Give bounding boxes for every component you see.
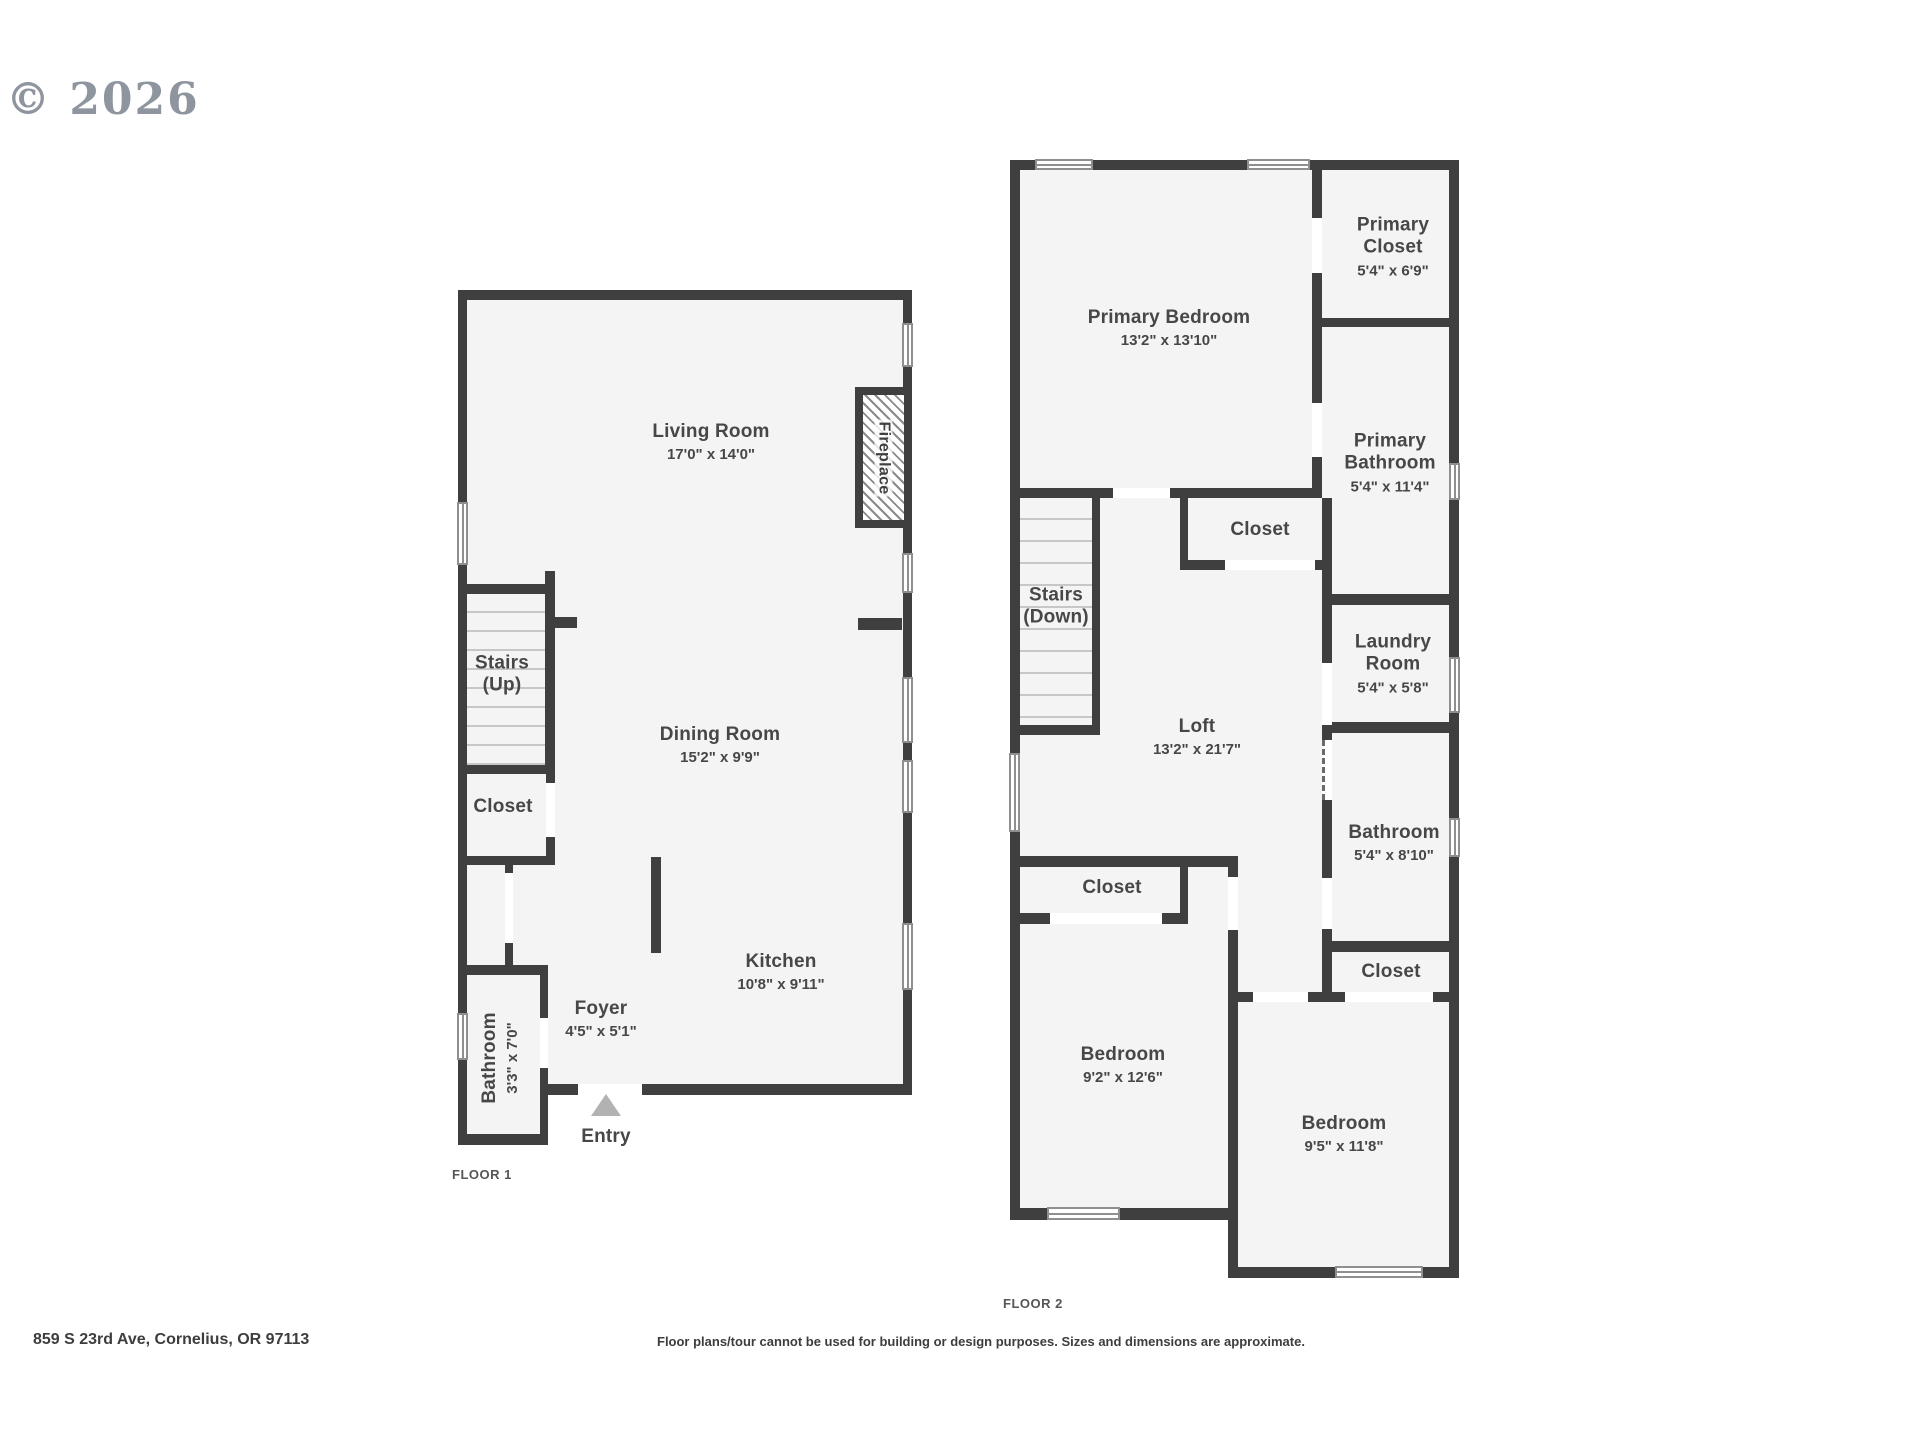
- room-name: Closet: [1082, 877, 1141, 899]
- window: [1335, 1266, 1423, 1278]
- wall: [458, 1134, 548, 1145]
- wall: [458, 765, 555, 774]
- room-name: Kitchen: [737, 951, 824, 973]
- window: [1449, 463, 1460, 500]
- wall: [1010, 856, 1238, 867]
- room-label: Closet: [473, 796, 532, 818]
- wall: [1010, 1208, 1238, 1220]
- room-name: Bathroom: [1348, 822, 1439, 844]
- door-opening: [1322, 663, 1332, 725]
- floor-2-label: FLOOR 2: [1003, 1296, 1063, 1311]
- room-label: Stairs (Down): [1023, 585, 1089, 630]
- room-name: Bedroom: [1302, 1113, 1387, 1135]
- window-pane: [907, 679, 909, 741]
- window-pane: [1454, 820, 1456, 855]
- fireplace: Fireplace: [855, 387, 912, 528]
- window: [902, 923, 913, 990]
- wall: [1010, 725, 1100, 735]
- window-pane: [907, 762, 909, 811]
- room-label: Dining Room15'2" x 9'9": [660, 724, 780, 766]
- floor-plan: © 2026 FireplaceLiving Room17'0" x 14'0"…: [0, 0, 1920, 1440]
- room-dims: 15'2" x 9'9": [660, 749, 780, 766]
- window-pane: [462, 504, 464, 563]
- room-dims: 9'2" x 12'6": [1081, 1069, 1166, 1086]
- room-dims: 3'3" x 7'0": [504, 1012, 521, 1103]
- room-dims: 10'8" x 9'11": [737, 976, 824, 993]
- room-name: Primary Bedroom: [1088, 307, 1250, 329]
- wall: [858, 618, 902, 630]
- room-label: Bedroom9'5" x 11'8": [1302, 1113, 1387, 1155]
- room-label: Primary Closet5'4" x 6'9": [1357, 215, 1429, 280]
- wall: [1010, 160, 1020, 1220]
- door-opening: [1225, 560, 1315, 570]
- wall: [458, 584, 547, 594]
- room-name: Living Room: [652, 421, 769, 443]
- room-label: Living Room17'0" x 14'0": [652, 421, 769, 463]
- window-pane: [907, 325, 909, 365]
- room-label: Foyer4'5" x 5'1": [565, 998, 636, 1040]
- door-opening: [1253, 992, 1308, 1002]
- window-pane: [1454, 465, 1456, 498]
- room-dims: 5'4" x 11'4": [1344, 478, 1435, 495]
- fireplace-label: Fireplace: [875, 419, 893, 496]
- room-label: Closet: [1082, 877, 1141, 899]
- window-pane: [1049, 1213, 1118, 1215]
- wall: [458, 965, 548, 975]
- room-dims: 13'2" x 21'7": [1153, 741, 1241, 758]
- window: [457, 502, 468, 565]
- door-opening: [1312, 403, 1322, 457]
- window: [1047, 1207, 1120, 1220]
- window-pane: [1037, 164, 1091, 166]
- floor-1-label: FLOOR 1: [452, 1167, 512, 1182]
- window-pane: [907, 925, 909, 988]
- room-dims: 5'4" x 8'10": [1348, 847, 1439, 864]
- wall: [1322, 722, 1458, 733]
- property-address: 859 S 23rd Ave, Cornelius, OR 97113: [33, 1331, 309, 1349]
- room-dims: 13'2" x 13'10": [1088, 332, 1250, 349]
- door-opening: [1050, 913, 1162, 924]
- wall: [651, 857, 661, 953]
- plan-layer: FireplaceLiving Room17'0" x 14'0"Dining …: [0, 0, 1920, 1440]
- room-label: Bathroom3'3" x 7'0": [479, 1012, 521, 1103]
- door-opening: [546, 783, 555, 837]
- room-dims: 17'0" x 14'0": [652, 446, 769, 463]
- room-label: Entry: [581, 1126, 631, 1148]
- wall: [1449, 160, 1459, 1278]
- wall: [1322, 318, 1458, 327]
- window: [1247, 159, 1310, 170]
- window-pane: [462, 1015, 464, 1058]
- door-opening: [1312, 218, 1322, 273]
- room-name: Stairs (Down): [1023, 585, 1089, 630]
- door-opening: [1113, 488, 1170, 498]
- room-dims: 5'4" x 6'9": [1357, 262, 1429, 279]
- folding-door: [1322, 740, 1332, 800]
- room-label: Primary Bedroom13'2" x 13'10": [1088, 307, 1250, 349]
- room-name: Bathroom: [479, 1012, 501, 1103]
- room-name: Closet: [473, 796, 532, 818]
- room-label: Stairs (Up): [475, 653, 529, 698]
- wall: [1322, 941, 1458, 952]
- room-name: Stairs (Up): [475, 653, 529, 698]
- window: [902, 323, 913, 367]
- door-opening: [540, 1018, 548, 1068]
- window-pane: [1014, 755, 1016, 830]
- room-dims: 9'5" x 11'8": [1302, 1138, 1387, 1155]
- window: [902, 760, 913, 813]
- door-opening: [1322, 878, 1332, 929]
- window: [902, 553, 913, 593]
- room-label: Closet: [1361, 961, 1420, 983]
- disclaimer-text: Floor plans/tour cannot be used for buil…: [657, 1334, 1305, 1349]
- door-opening: [1228, 877, 1238, 930]
- wall: [545, 571, 555, 774]
- room-label: Closet: [1230, 519, 1289, 541]
- room-name: Dining Room: [660, 724, 780, 746]
- room-name: Closet: [1230, 519, 1289, 541]
- room-dims: 5'4" x 5'8": [1355, 679, 1431, 696]
- wall: [458, 290, 912, 300]
- door-opening: [1345, 992, 1433, 1002]
- room-name: Laundry Room: [1355, 632, 1431, 677]
- room-label: Kitchen10'8" x 9'11": [737, 951, 824, 993]
- entry-arrow-icon: [591, 1094, 621, 1116]
- wall: [555, 617, 577, 628]
- window: [1449, 818, 1460, 857]
- room-label: Laundry Room5'4" x 5'8": [1355, 632, 1431, 697]
- room-label: Loft13'2" x 21'7": [1153, 716, 1241, 758]
- room-name: Entry: [581, 1126, 631, 1148]
- room-name: Primary Closet: [1357, 215, 1429, 260]
- room-label: Bedroom9'2" x 12'6": [1081, 1044, 1166, 1086]
- room-dims: 4'5" x 5'1": [565, 1023, 636, 1040]
- window: [1035, 159, 1093, 170]
- window: [1449, 657, 1460, 713]
- window-pane: [1249, 164, 1308, 166]
- wall: [1322, 594, 1458, 605]
- room-name: Closet: [1361, 961, 1420, 983]
- wall: [458, 856, 555, 865]
- door-opening: [505, 873, 513, 943]
- window: [457, 1013, 468, 1060]
- room-label: Bathroom5'4" x 8'10": [1348, 822, 1439, 864]
- window-pane: [1337, 1271, 1421, 1273]
- window: [902, 677, 913, 743]
- window-pane: [1454, 659, 1456, 711]
- window: [1009, 753, 1020, 832]
- room-name: Loft: [1153, 716, 1241, 738]
- window-pane: [907, 555, 909, 591]
- wall: [1180, 489, 1188, 570]
- room-name: Primary Bathroom: [1344, 431, 1435, 476]
- wall: [1228, 992, 1238, 1278]
- room-name: Bedroom: [1081, 1044, 1166, 1066]
- room-label: Primary Bathroom5'4" x 11'4": [1344, 431, 1435, 496]
- room-name: Foyer: [565, 998, 636, 1020]
- wall: [1092, 489, 1100, 735]
